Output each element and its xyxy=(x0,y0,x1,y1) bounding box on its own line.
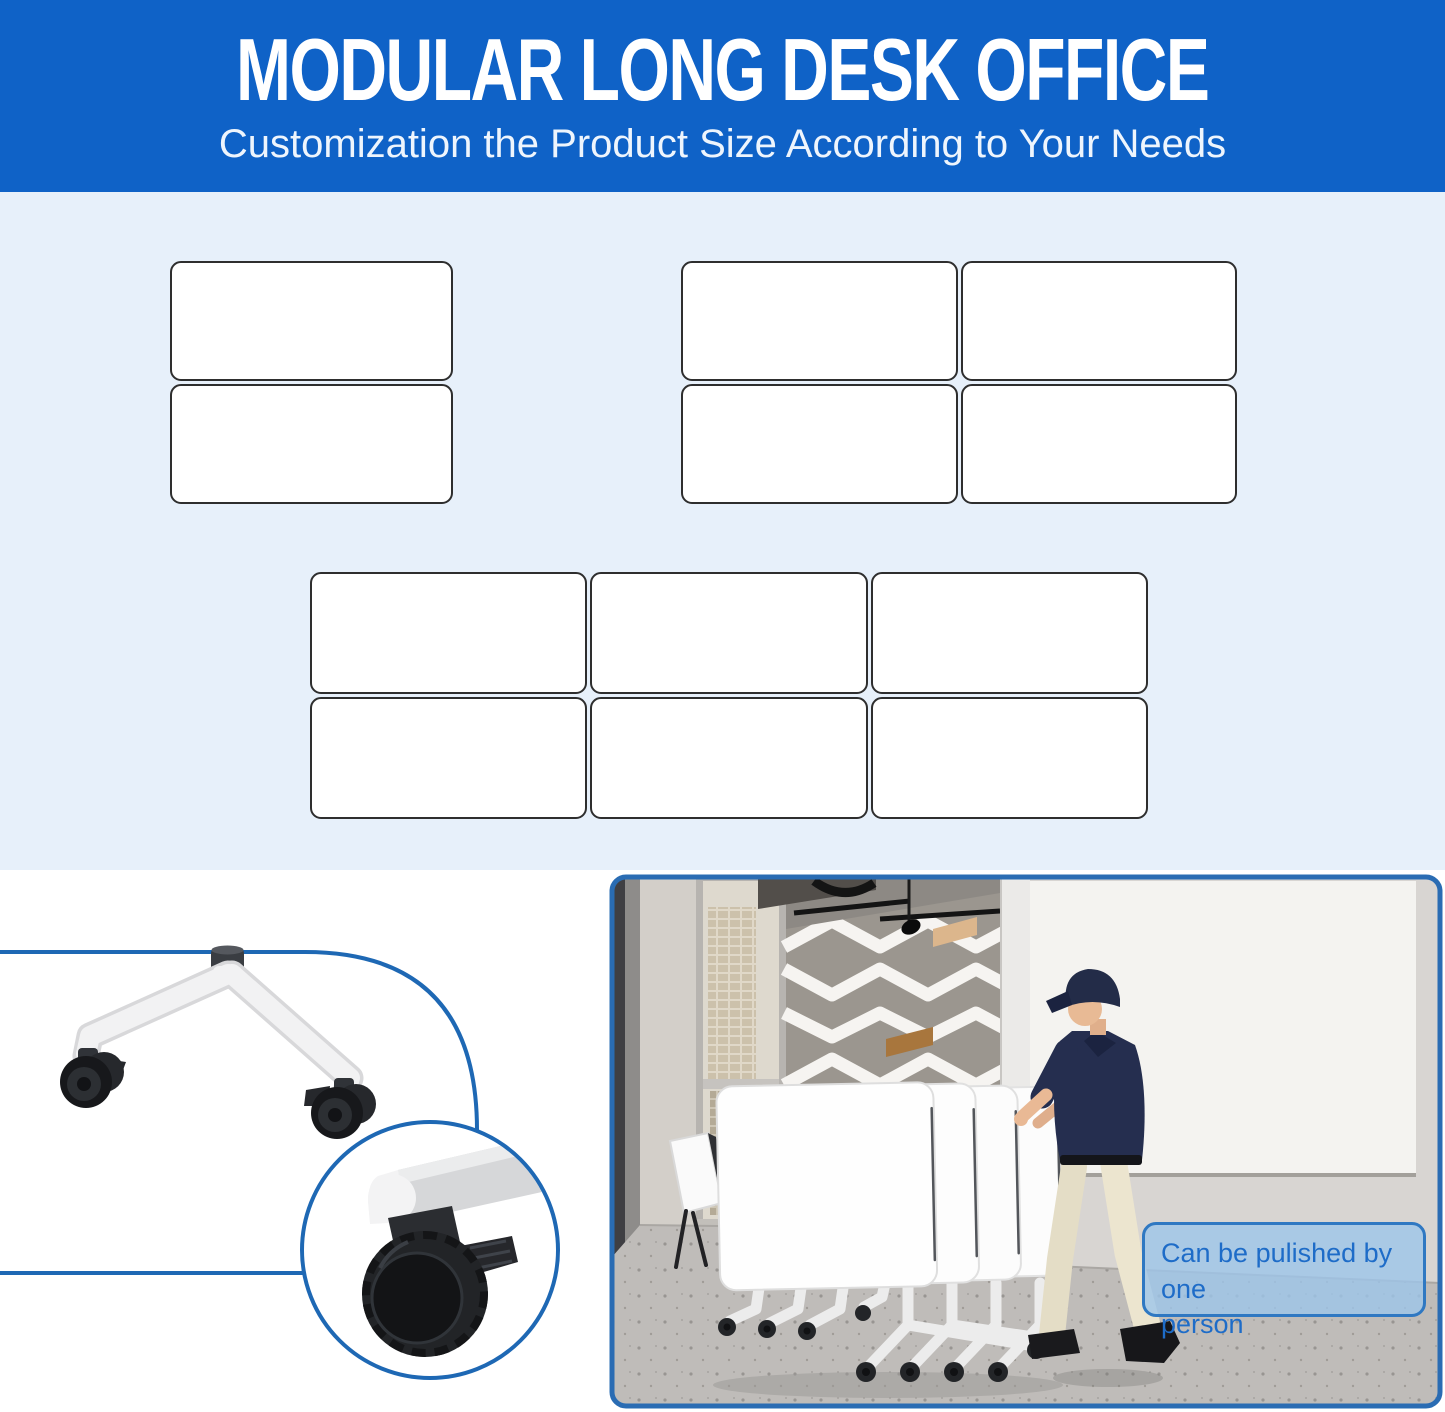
desk-top xyxy=(681,384,958,504)
desk-top xyxy=(681,261,958,381)
caster-zoom-circle xyxy=(302,1122,560,1378)
left-caster-icon xyxy=(60,1048,126,1108)
desk-top xyxy=(961,384,1238,504)
desk-layout-1x2 xyxy=(170,261,453,504)
modular-layout-section xyxy=(0,192,1445,870)
right-caster-icon xyxy=(304,1078,376,1139)
desk-top xyxy=(170,261,453,381)
desk-layout-2x2 xyxy=(681,261,1237,504)
desk-top xyxy=(590,572,867,694)
caster-detail-illustration xyxy=(0,870,610,1412)
photo-panel: Can be pulished by one person xyxy=(608,873,1444,1410)
desk-layout-3x2 xyxy=(310,572,1148,819)
header-banner: MODULAR LONG DESK OFFICE Customization t… xyxy=(0,0,1445,192)
office-photo xyxy=(608,873,1444,1410)
page-subtitle: Customization the Product Size According… xyxy=(219,122,1226,167)
product-infographic: MODULAR LONG DESK OFFICE Customization t… xyxy=(0,0,1445,1412)
desk-top xyxy=(170,384,453,504)
desk-leg-graphic xyxy=(60,946,376,1140)
page-title: MODULAR LONG DESK OFFICE xyxy=(236,26,1208,114)
desk-top xyxy=(310,697,587,819)
folded-table-stack xyxy=(716,1079,1063,1290)
desk-top xyxy=(871,697,1148,819)
desk-top xyxy=(310,572,587,694)
callout-pushed-by-one-person: Can be pulished by one person xyxy=(1142,1222,1426,1317)
desk-top xyxy=(590,697,867,819)
desk-top xyxy=(961,261,1238,381)
desk-top xyxy=(871,572,1148,694)
